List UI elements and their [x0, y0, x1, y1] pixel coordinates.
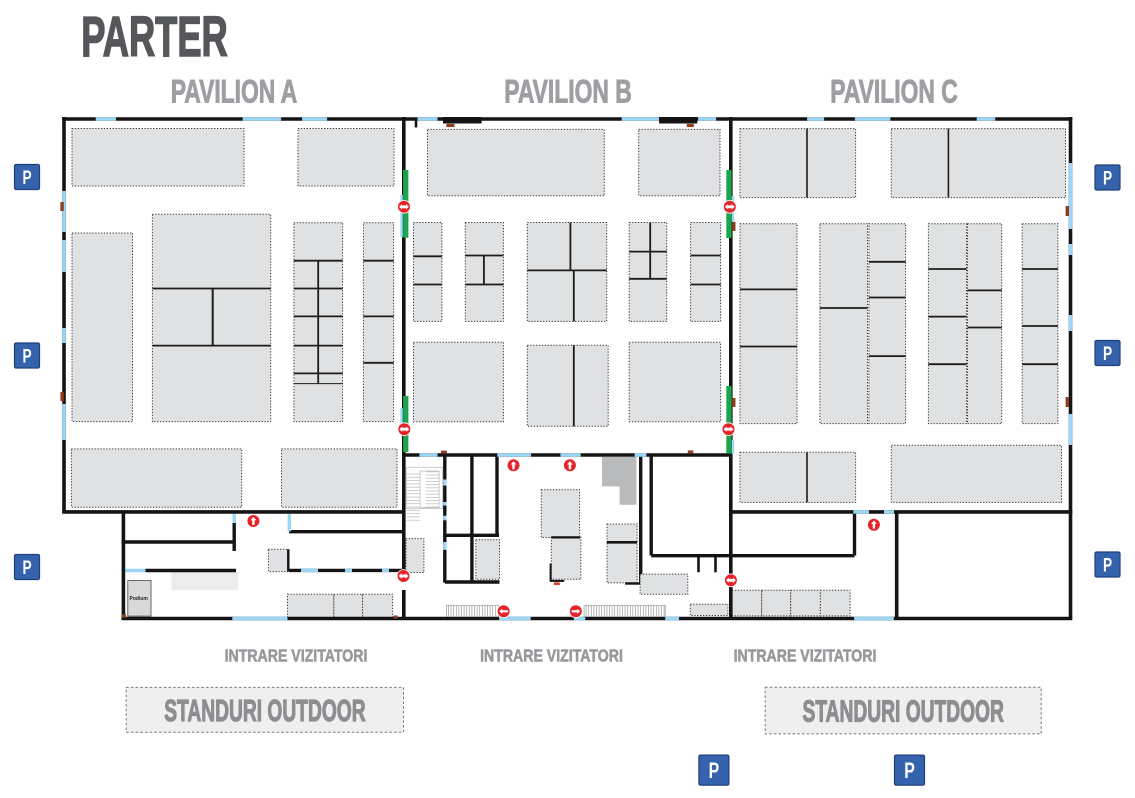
svg-text:P: P [22, 345, 31, 367]
svg-text:PAVILION B: PAVILION B [504, 74, 631, 110]
svg-text:P: P [22, 167, 31, 189]
svg-text:PAVILION A: PAVILION A [171, 74, 298, 110]
svg-text:P: P [1103, 343, 1112, 365]
svg-text:P: P [709, 760, 720, 784]
svg-text:P: P [1103, 554, 1112, 576]
svg-text:INTRARE VIZITATORI: INTRARE VIZITATORI [734, 647, 877, 666]
svg-text:Podium: Podium [130, 596, 149, 602]
svg-text:PAVILION C: PAVILION C [830, 74, 957, 110]
svg-text:INTRARE VIZITATORI: INTRARE VIZITATORI [225, 647, 368, 666]
svg-text:STANDURI OUTDOOR: STANDURI OUTDOOR [803, 695, 1005, 729]
svg-text:STANDURI OUTDOOR: STANDURI OUTDOOR [164, 694, 366, 728]
svg-text:PARTER: PARTER [81, 6, 228, 69]
svg-text:P: P [22, 557, 31, 579]
svg-text:P: P [1103, 167, 1112, 189]
svg-text:INTRARE VIZITATORI: INTRARE VIZITATORI [480, 647, 623, 666]
svg-text:P: P [904, 760, 915, 784]
